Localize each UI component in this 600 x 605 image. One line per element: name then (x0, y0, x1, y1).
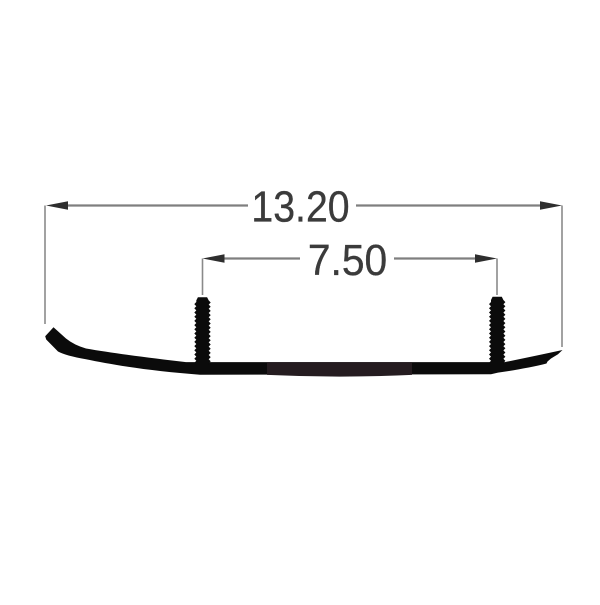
svg-text:7.50: 7.50 (308, 236, 387, 285)
svg-text:13.20: 13.20 (251, 181, 349, 230)
